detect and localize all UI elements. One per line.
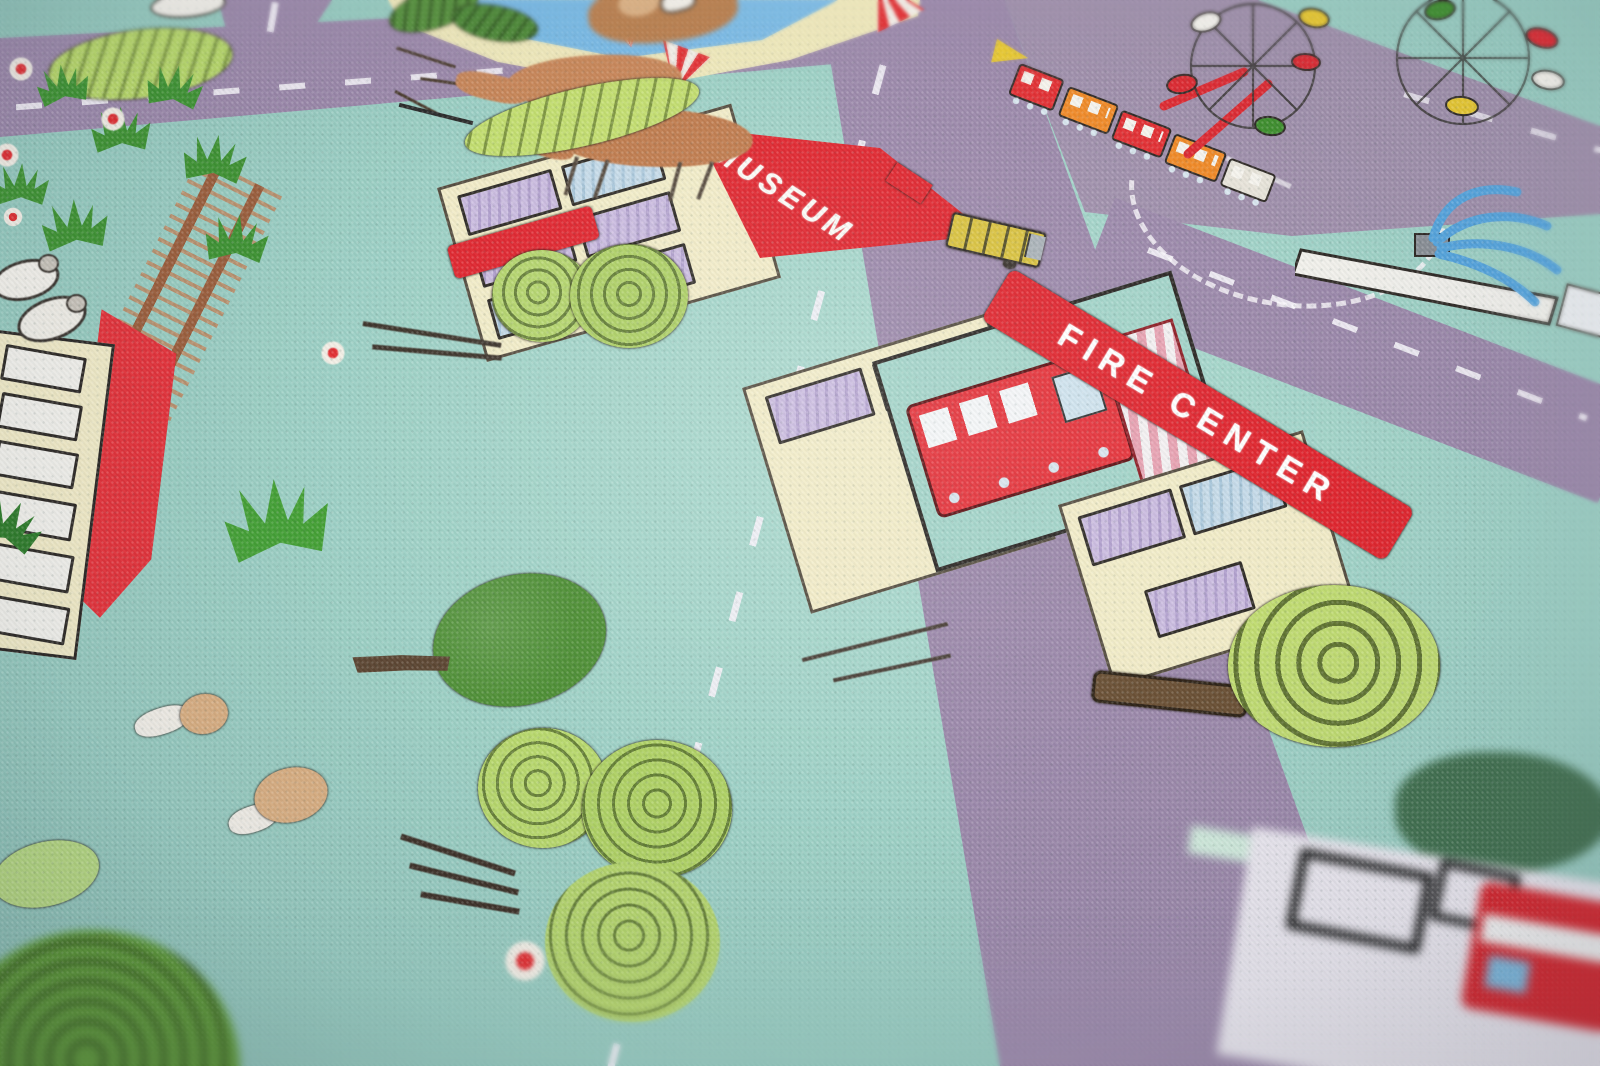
flower [100,106,126,132]
horse-leg [593,159,610,198]
flower [320,340,346,366]
fire-truck-windows [919,381,1044,449]
fountain [1295,178,1600,343]
grass-tuft [220,472,335,564]
apartment-window [0,392,83,442]
fire-window [1077,488,1186,566]
horse-leg [668,162,682,202]
flower [0,142,20,168]
swirl-tree [570,244,688,348]
green-oval-bush [0,830,106,918]
ferris-wheels [1118,0,1600,173]
grass-tuft [39,196,110,252]
lollipop-tree [1228,585,1440,747]
path-stroke [802,622,949,662]
sheep-partial [149,0,227,21]
apartment-window [0,440,79,490]
apartment-window [0,593,70,645]
sheep-head [66,294,87,313]
oval-tree [419,556,620,724]
fire-window [765,367,876,444]
horse-leg [696,161,714,200]
apartment-window [0,344,87,394]
truck-stripe [1480,914,1600,964]
flower [8,56,34,82]
flower [503,939,547,983]
grass-tuft [0,163,49,205]
play-rug-photo: MUSEUM FIRE CENTER [0,0,1600,1066]
fire-window [1144,561,1256,639]
swirl-tree [582,740,732,878]
apartment-window [0,541,75,593]
swirl-tree [545,862,720,1022]
mushroom-cap [177,690,231,738]
building-window-frame [1428,858,1521,936]
sheep-head [38,254,59,273]
flower [3,207,24,228]
dark-bush [1395,752,1600,872]
red-truck-blurry [1460,881,1600,1033]
tree-trunk-strokes [420,891,520,914]
truck-window [1484,955,1531,994]
horse-leg [564,156,580,195]
